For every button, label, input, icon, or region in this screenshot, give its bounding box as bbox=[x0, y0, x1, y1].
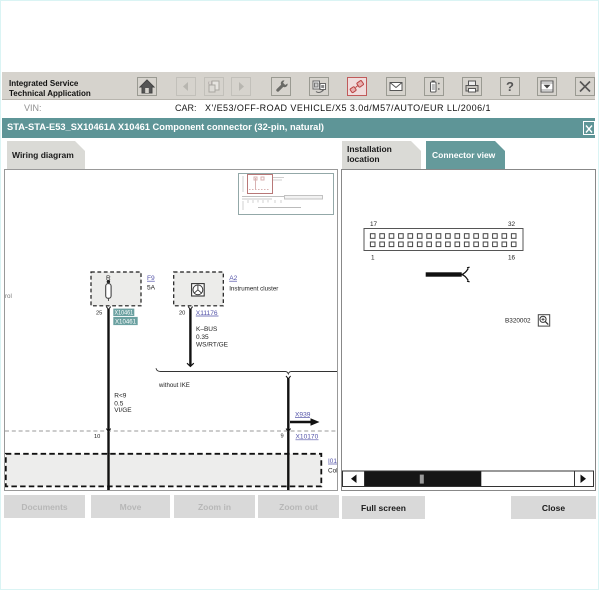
svg-text:32: 32 bbox=[508, 221, 516, 228]
svg-text:rol: rol bbox=[5, 293, 12, 300]
svg-text:10: 10 bbox=[94, 434, 100, 440]
svg-text:R<9: R<9 bbox=[114, 392, 126, 399]
svg-text:20: 20 bbox=[179, 310, 185, 316]
svg-text:K–BUS: K–BUS bbox=[196, 326, 218, 333]
svg-text:1: 1 bbox=[371, 254, 375, 261]
svg-text:25: 25 bbox=[96, 310, 102, 316]
svg-text:0.35: 0.35 bbox=[196, 334, 209, 341]
svg-text:9: 9 bbox=[281, 434, 284, 440]
svg-text:?: ? bbox=[506, 79, 514, 94]
svg-text:B320002: B320002 bbox=[505, 317, 531, 324]
svg-text:16: 16 bbox=[508, 254, 516, 261]
svg-text:X10461: X10461 bbox=[115, 318, 136, 325]
svg-text:WS/RT/GE: WS/RT/GE bbox=[196, 342, 229, 349]
svg-text:Col: Col bbox=[328, 467, 337, 474]
svg-text:X10461: X10461 bbox=[115, 309, 134, 316]
svg-text:17: 17 bbox=[370, 221, 378, 228]
svg-text:Instrument cluster: Instrument cluster bbox=[229, 286, 278, 293]
svg-text:5A: 5A bbox=[147, 284, 156, 291]
svg-text:without IKE: without IKE bbox=[158, 382, 190, 389]
svg-text:VI/GE: VI/GE bbox=[114, 407, 132, 414]
